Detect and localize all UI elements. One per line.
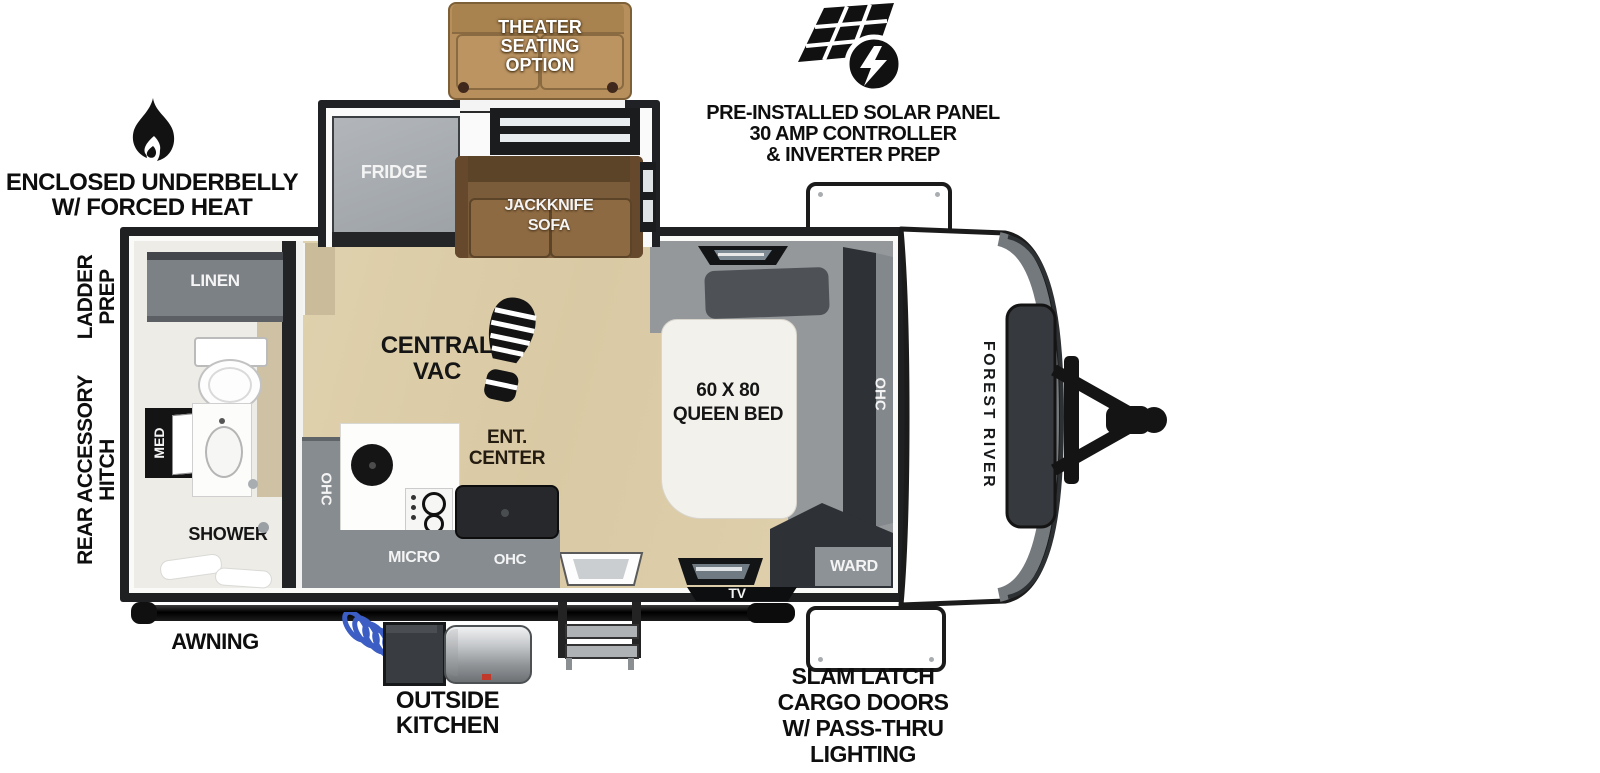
theater-sofa-foot xyxy=(458,82,469,93)
fridge-counter-dark xyxy=(332,232,456,247)
tongue-hitch xyxy=(1040,350,1175,490)
cooktop xyxy=(405,488,453,535)
ward-label: WARD xyxy=(817,558,891,576)
awning-end-cap xyxy=(747,603,795,623)
outside-kitchen-box xyxy=(383,622,446,686)
jackknife-sofa-label: JACKKNIFE SOFA xyxy=(455,196,643,236)
tv-label: TV xyxy=(707,585,767,601)
cargo-doors-label: SLAM LATCH CARGO DOORS W/ PASS-THRU LIGH… xyxy=(752,663,974,767)
slideout-side-window xyxy=(640,162,656,232)
floorplan-canvas: THEATER SEATING OPTION PRE-INSTALLED SOL… xyxy=(0,0,1600,773)
awning-end-cap xyxy=(131,602,157,624)
ohc-bottom-label: OHC xyxy=(482,551,538,568)
slideout-rear-window xyxy=(490,108,640,155)
kitchen-sink xyxy=(351,444,393,486)
slideout-section: FRIDGE JACKKNIFE SOFA xyxy=(318,100,660,247)
flame-icon xyxy=(128,98,178,166)
forest-river-brand: FOREST RIVER xyxy=(979,341,997,489)
micro-label: MICRO xyxy=(378,549,450,567)
underbelly-callout: ENCLOSED UNDERBELLY W/ FORCED HEAT xyxy=(0,170,308,220)
theater-seating-option: THEATER SEATING OPTION xyxy=(448,2,632,100)
entry-steps xyxy=(558,602,644,672)
bed-pillow xyxy=(704,267,830,319)
fridge-label: FRIDGE xyxy=(332,162,456,183)
queen-bed-label: 60 X 80 QUEEN BED xyxy=(661,379,795,427)
awning-bar xyxy=(133,605,795,621)
solar-callout: PRE-INSTALLED SOLAR PANEL 30 AMP CONTROL… xyxy=(668,103,1038,166)
ent-center-label: ENT. CENTER xyxy=(465,427,549,469)
ladder-prep-label: LADDER PREP xyxy=(75,255,119,340)
rear-accessory-hitch-label: REAR ACCESSORY HITCH xyxy=(75,375,119,565)
ohc-kitchen-label: OHC xyxy=(318,472,335,505)
sofa-backrest xyxy=(455,156,643,182)
ohc-bedroom-label: OHC xyxy=(872,377,889,410)
theater-seating-label: THEATER SEATING OPTION xyxy=(450,18,630,75)
entertainment-center xyxy=(455,485,559,539)
theater-sofa-foot xyxy=(607,82,618,93)
jackknife-sofa: JACKKNIFE SOFA xyxy=(455,156,643,258)
trailer-main-body: LINEN MED SHOWER xyxy=(120,227,907,602)
outside-kitchen-label: OUTSIDE KITCHEN xyxy=(375,688,520,738)
awning-label: AWNING xyxy=(160,631,270,652)
outside-kitchen-griddle xyxy=(444,625,532,684)
solar-panel-icon xyxy=(788,0,910,100)
